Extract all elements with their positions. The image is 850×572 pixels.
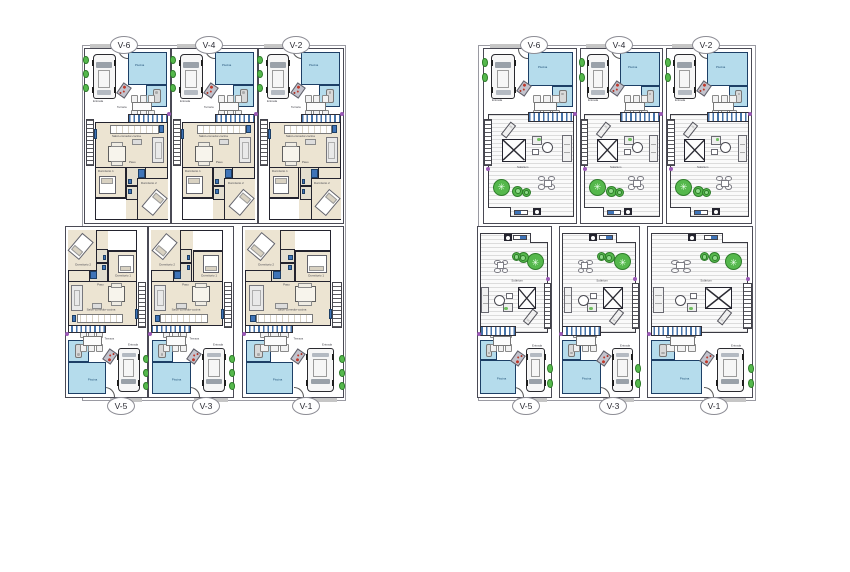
skylight <box>518 287 537 309</box>
plan-sheet: Piscina Entrada Terraza Salón-comedor-co… <box>0 0 850 572</box>
pool-label: Piscina <box>716 66 725 69</box>
kitchen-sink <box>155 315 160 322</box>
bedroom-1: Dormitorio 1 <box>295 251 331 282</box>
exterior-stair <box>667 119 675 166</box>
flower-icon <box>659 112 663 116</box>
side-table-icon <box>687 303 697 312</box>
skylight <box>705 287 732 309</box>
dining-table <box>108 286 125 302</box>
kitchen-sink <box>72 315 77 322</box>
tv-cabinet <box>275 303 288 309</box>
dining-table <box>108 146 126 162</box>
unit-drawing: Piscina Entrada Terraza Salón-comedor-co… <box>243 227 343 397</box>
vent-icon <box>712 208 720 215</box>
bedroom-2-label: Dormitorio 2 <box>159 264 175 267</box>
hall-label: Paso <box>302 161 309 164</box>
plant-icon <box>615 188 624 197</box>
bush-icon <box>339 369 345 377</box>
bush-icon <box>665 73 671 82</box>
plan-label-v-6: V-6 <box>110 36 138 54</box>
car-icon <box>93 54 116 99</box>
plan-label-v-2: V-2 <box>282 36 310 54</box>
sofa <box>326 137 338 163</box>
skylight <box>502 139 526 161</box>
solar-unit-icon <box>694 210 708 215</box>
outdoor-sofa <box>649 135 658 161</box>
pool: Piscina <box>68 362 106 394</box>
plant-icon <box>522 188 531 197</box>
bed-icon <box>203 255 219 273</box>
house-body: Salón-comedor-cocina Dormitorio 1 Paso D… <box>95 122 168 219</box>
bedroom-1-label: Dormitorio 1 <box>185 170 201 173</box>
unit-drawing: Piscina Entrada Solárium ✳ <box>478 227 551 397</box>
kitchen-counter <box>256 314 313 322</box>
exterior-stair <box>544 283 551 329</box>
bedroom-2: Dormitorio 2 <box>151 231 181 271</box>
bush-icon <box>170 84 176 92</box>
bedroom-1: Dormitorio 1 <box>182 167 213 198</box>
ground-floor-unit-v-3: Piscina Entrada Terraza Salón-comedor-co… <box>148 226 234 398</box>
shower-icon <box>138 169 145 178</box>
car-icon <box>526 348 545 392</box>
bush-icon <box>547 364 553 373</box>
dining-table <box>195 146 213 162</box>
solarium-deck: Solárium ✳ <box>584 114 660 217</box>
side-table-icon <box>532 136 542 145</box>
bed-icon <box>141 189 168 217</box>
shower-icon <box>174 271 181 279</box>
car-icon <box>612 348 633 392</box>
exterior-stair <box>743 283 752 329</box>
vent-icon <box>624 208 632 215</box>
solar-unit-icon <box>514 210 528 215</box>
skylight <box>603 287 623 309</box>
solarium-deck: Solárium ✳ <box>670 114 749 217</box>
round-table-4-chairs <box>493 260 510 274</box>
sun-lounger-icon <box>717 309 732 326</box>
unit-drawing: Piscina Entrada Terraza Salón-comedor-co… <box>259 49 343 223</box>
bedroom-1: Dormitorio 1 <box>269 167 299 198</box>
car-icon <box>674 54 696 99</box>
bathroom-2 <box>300 186 312 200</box>
pool: Piscina <box>152 362 191 394</box>
car-icon <box>267 54 290 99</box>
chair-icon <box>532 149 539 155</box>
flower-icon <box>477 332 481 336</box>
exterior-stair <box>138 282 146 328</box>
bedroom-2: Dormitorio 2 <box>68 231 97 271</box>
pergola-slats <box>562 326 601 336</box>
exterior-stair <box>260 119 268 166</box>
exterior-stair <box>332 282 342 328</box>
living-room-label: Salón-comedor-cocina <box>87 309 116 312</box>
entrance-label: Entrada <box>128 343 138 346</box>
gate-door-arc <box>294 387 304 397</box>
chair-icon <box>590 293 597 299</box>
pool: Piscina <box>707 52 748 87</box>
flower-icon <box>148 332 152 336</box>
bedroom-1-label: Dormitorio 1 <box>272 170 288 173</box>
bedroom-2: Dormitorio 2 <box>137 178 168 219</box>
pergola-slats <box>480 326 516 336</box>
bathroom-2 <box>213 186 225 200</box>
terrace-label: Terraza <box>190 337 200 340</box>
sofa <box>155 285 167 310</box>
living-room-label: Salón-comedor-cocina <box>199 135 228 138</box>
deck-notch <box>488 207 511 217</box>
pool-label: Piscina <box>538 66 547 69</box>
pool-label: Piscina <box>222 64 231 67</box>
bedroom-2: Dormitorio 2 <box>224 178 255 219</box>
bush-icon <box>229 355 235 363</box>
plant-icon: ✳ <box>493 179 510 196</box>
plan-label-v-3: V-3 <box>599 397 627 415</box>
gate-door-arc <box>105 387 115 397</box>
exterior-stair <box>632 283 639 329</box>
solarium-label: Solárium <box>701 280 712 283</box>
window-mark <box>329 309 332 319</box>
side-table-icon <box>587 303 597 312</box>
car-icon <box>203 348 226 392</box>
hall-label: Paso <box>216 161 223 164</box>
gate-door-arc <box>600 387 610 397</box>
solar-unit-icon <box>704 235 718 240</box>
living-room-label: Salón-comedor-cocina <box>286 135 315 138</box>
outdoor-sofa <box>564 287 573 313</box>
chair-icon <box>690 293 697 299</box>
chair-icon <box>506 293 513 299</box>
chair-icon <box>624 149 631 155</box>
toilet-icon <box>288 265 293 270</box>
terrace-label: Terraza <box>294 337 304 340</box>
bed-icon <box>273 176 289 194</box>
house-body: Salón-comedor-cocina Dormitorio 1 Paso D… <box>151 230 223 325</box>
solarium-label: Solárium <box>517 166 528 169</box>
kitchen-counter <box>77 314 123 322</box>
sun-lounger-icon <box>596 122 611 139</box>
pool-label: Piscina <box>273 378 282 381</box>
toilet-icon <box>187 265 191 270</box>
chair-icon <box>711 149 718 155</box>
side-yard <box>108 231 136 251</box>
hall-label: Paso <box>182 284 189 287</box>
living-room-label: Salón-comedor-cocina <box>112 135 141 138</box>
sun-lounger-icon <box>609 309 624 326</box>
toilet-icon <box>102 265 106 270</box>
pool: Piscina <box>528 52 573 87</box>
outdoor-sofa <box>482 287 490 313</box>
pergola-slats <box>620 112 660 122</box>
washbasin-icon <box>187 255 190 260</box>
plant-icon: ✳ <box>527 253 544 270</box>
toilet-icon <box>302 179 306 184</box>
solarium-label: Solárium <box>597 280 608 283</box>
bush-icon <box>83 56 89 64</box>
bush-icon <box>748 364 754 373</box>
car-icon <box>118 348 140 392</box>
vent-icon <box>504 234 512 241</box>
gate-door-arc <box>704 387 714 397</box>
bush-icon <box>579 58 585 67</box>
toilet-icon <box>128 179 132 184</box>
sun-lounger-icon <box>682 122 697 139</box>
solar-unit-icon <box>513 235 527 240</box>
dining-table <box>192 286 210 302</box>
plant-icon: ✳ <box>725 253 742 270</box>
bed-icon <box>151 233 177 260</box>
window-mark <box>181 129 184 139</box>
side-yard <box>193 231 222 251</box>
side-yard <box>96 198 126 218</box>
bed-icon <box>228 189 255 217</box>
pool-label: Piscina <box>172 378 181 381</box>
bush-icon <box>257 84 263 92</box>
bathroom-2 <box>280 249 294 263</box>
exterior-stair <box>224 282 232 328</box>
kitchen-sink <box>246 125 251 133</box>
pool-label: Piscina <box>628 66 637 69</box>
side-table-icon <box>503 303 513 312</box>
round-table-icon <box>632 142 643 153</box>
deck-notch <box>584 207 604 217</box>
bedroom-2-label: Dormitorio 2 <box>75 264 91 267</box>
tv-cabinet <box>305 139 316 145</box>
bathroom-2 <box>96 249 108 263</box>
bush-icon <box>83 84 89 92</box>
living-room-label: Salón-comedor-cocina <box>172 309 201 312</box>
ground-floor-unit-v-6: Piscina Entrada Terraza Salón-comedor-co… <box>84 48 171 224</box>
roof-unit-v-3: Piscina Entrada Solárium ✳ <box>559 226 640 398</box>
vent-icon <box>533 208 541 215</box>
shower-icon <box>311 169 318 178</box>
kitchen-sink <box>159 125 164 133</box>
exterior-stair <box>173 119 182 166</box>
bush-icon <box>170 56 176 64</box>
washbasin-icon <box>215 189 219 195</box>
pool: Piscina <box>562 360 601 394</box>
unit-drawing: Piscina Entrada Solárium ✳ <box>484 49 576 223</box>
outdoor-sofa <box>738 135 747 161</box>
unit-drawing: Piscina Entrada Terraza Salón-comedor-co… <box>149 227 233 397</box>
round-table-4-chairs <box>669 260 694 274</box>
plant-icon: ✳ <box>589 179 606 196</box>
flower-icon <box>340 112 344 116</box>
skylight <box>597 139 618 161</box>
window-mark <box>135 309 138 319</box>
pergola-slats <box>528 112 574 122</box>
sun-lounger-icon <box>523 309 538 326</box>
bush-icon <box>339 355 345 363</box>
plant-icon: ✳ <box>614 253 631 270</box>
roof-unit-v-5: Piscina Entrada Solárium ✳ <box>477 226 552 398</box>
kitchen-sink <box>332 125 337 133</box>
roof-unit-v-1: Piscina Entrada Solárium ✳ <box>647 226 753 398</box>
flower-icon <box>559 332 563 336</box>
solarium-deck: Solárium ✳ <box>651 233 748 333</box>
flower-icon <box>633 277 637 281</box>
exterior-stair <box>86 119 95 166</box>
dining-table <box>295 286 316 302</box>
pool-label: Piscina <box>680 377 689 380</box>
tv-cabinet <box>176 303 187 309</box>
plan-label-v-5: V-5 <box>107 397 135 415</box>
entrance-label: Entrada <box>267 100 277 103</box>
car-icon <box>587 54 608 99</box>
round-table-4-chairs <box>627 176 646 190</box>
plant-icon: ✳ <box>675 179 692 196</box>
bush-icon <box>257 56 263 64</box>
unit-drawing: Piscina Entrada Terraza Salón-comedor-co… <box>66 227 147 397</box>
round-table-4-chairs <box>536 176 558 190</box>
toilet-icon <box>215 179 219 184</box>
solarium-label: Solárium <box>610 166 621 169</box>
bedroom-2-label: Dormitorio 2 <box>228 182 244 185</box>
skylight <box>684 139 705 161</box>
sofa <box>249 285 263 310</box>
hall-label: Paso <box>97 284 104 287</box>
pool: Piscina <box>301 52 340 85</box>
bedroom-1: Dormitorio 1 <box>95 167 126 198</box>
solarium-deck: Solárium ✳ <box>488 114 574 217</box>
ground-floor-unit-v-4: Piscina Entrada Terraza Salón-comedor-co… <box>171 48 258 224</box>
round-table-icon <box>494 295 505 306</box>
unit-drawing: Piscina Entrada Terraza Salón-comedor-co… <box>172 49 257 223</box>
flower-icon <box>65 332 69 336</box>
bush-icon <box>482 73 488 82</box>
exterior-stair <box>484 119 492 166</box>
sofa <box>71 285 83 310</box>
solarium-deck: Solárium ✳ <box>562 233 636 333</box>
plant-icon <box>709 252 720 263</box>
shower-icon <box>90 271 96 279</box>
vent-icon <box>589 234 597 241</box>
entrance-label: Entrada <box>180 100 190 103</box>
unit-drawing: Piscina Entrada Solárium ✳ <box>581 49 662 223</box>
plan-label-v-4: V-4 <box>195 36 223 54</box>
terrace-label: Terraza <box>117 106 127 109</box>
flower-icon <box>546 277 550 281</box>
tv-cabinet <box>132 139 143 145</box>
bush-icon <box>170 70 176 78</box>
flower-icon <box>573 112 577 116</box>
flower-icon <box>583 167 587 171</box>
kitchen-counter <box>160 314 208 322</box>
plan-label-v-1: V-1 <box>292 397 320 415</box>
bush-icon <box>257 70 263 78</box>
pool: Piscina <box>480 360 516 394</box>
bed-icon <box>314 189 341 217</box>
bedroom-2: Dormitorio 2 <box>245 231 281 271</box>
car-icon <box>491 54 515 99</box>
entrance-label: Entrada <box>532 344 542 347</box>
sofa <box>239 137 251 163</box>
living-room-label: Salón-comedor-cocina <box>277 309 306 312</box>
window-mark <box>268 129 271 139</box>
car-icon <box>180 54 203 99</box>
bedroom-1-label: Dormitorio 1 <box>309 275 325 278</box>
dining-table <box>282 146 300 162</box>
car-icon <box>307 348 334 392</box>
bedroom-1-label: Dormitorio 1 <box>201 275 217 278</box>
kitchen-counter <box>110 125 158 134</box>
bathroom-2 <box>181 249 193 263</box>
vent-icon <box>688 234 696 241</box>
solarium-deck: Solárium ✳ <box>480 233 548 333</box>
hall-label: Paso <box>129 161 136 164</box>
terrace-label: Terraza <box>291 106 301 109</box>
plan-label-v-5: V-5 <box>512 397 540 415</box>
bedroom-1: Dormitorio 1 <box>193 251 223 282</box>
flower-icon <box>748 112 752 116</box>
round-table-icon <box>578 295 589 306</box>
flower-icon <box>746 277 750 281</box>
kitchen-counter <box>197 125 245 134</box>
terrace-label: Terraza <box>105 337 115 340</box>
bush-icon <box>482 58 488 67</box>
bush-icon <box>83 70 89 78</box>
bedroom-1-label: Dormitorio 1 <box>98 170 114 173</box>
hall-label: Paso <box>284 284 291 287</box>
round-table-icon <box>675 295 686 306</box>
unit-drawing: Piscina Entrada Terraza Salón-comedor-co… <box>85 49 170 223</box>
round-table-4-chairs <box>714 176 734 190</box>
bedroom-2-label: Dormitorio 2 <box>141 182 157 185</box>
pool-label: Piscina <box>309 64 318 67</box>
entrance-label: Entrada <box>675 99 685 102</box>
pool: Piscina <box>128 52 168 85</box>
plan-label-v-1: V-1 <box>700 397 728 415</box>
side-yard <box>183 198 213 218</box>
bedroom-1: Dormitorio 1 <box>108 251 137 282</box>
entrance-label: Entrada <box>93 100 103 103</box>
solar-unit-icon <box>607 210 621 215</box>
plan-label-v-3: V-3 <box>192 397 220 415</box>
round-table-4-chairs <box>576 260 595 274</box>
bush-icon <box>579 73 585 82</box>
bedroom-2-label: Dormitorio 2 <box>314 182 330 185</box>
round-table-icon <box>542 142 553 153</box>
gate-door-arc <box>190 387 200 397</box>
entrance-label: Entrada <box>731 344 741 347</box>
solar-unit-icon <box>599 235 613 240</box>
entrance-label: Entrada <box>322 343 332 346</box>
bathroom-2 <box>126 186 138 200</box>
washbasin-icon <box>128 189 132 195</box>
washbasin-icon <box>103 255 106 260</box>
bush-icon <box>229 382 235 390</box>
bedroom-1-label: Dormitorio 1 <box>115 275 131 278</box>
plant-icon <box>702 188 711 197</box>
solarium-label: Solárium <box>697 166 708 169</box>
washbasin-icon <box>302 189 305 195</box>
pergola-slats <box>707 112 749 122</box>
pool: Piscina <box>215 52 255 85</box>
deck-notch <box>616 233 636 243</box>
round-table-icon <box>720 142 731 153</box>
car-icon <box>717 348 744 392</box>
deck-notch <box>530 233 548 243</box>
pool-label: Piscina <box>88 378 97 381</box>
house-body: Salón-comedor-cocina Dormitorio 1 Paso D… <box>68 230 138 325</box>
house-body: Salón-comedor-cocina Dormitorio 1 Paso D… <box>182 122 255 219</box>
plan-label-v-6: V-6 <box>520 36 548 54</box>
bush-icon <box>339 382 345 390</box>
shower-icon <box>273 271 281 279</box>
roof-unit-v-4: Piscina Entrada Solárium ✳ <box>580 48 663 224</box>
unit-drawing: Piscina Entrada Solárium ✳ <box>648 227 752 397</box>
roof-unit-v-2: Piscina Entrada Solárium ✳ <box>666 48 752 224</box>
exterior-stair <box>581 119 588 166</box>
